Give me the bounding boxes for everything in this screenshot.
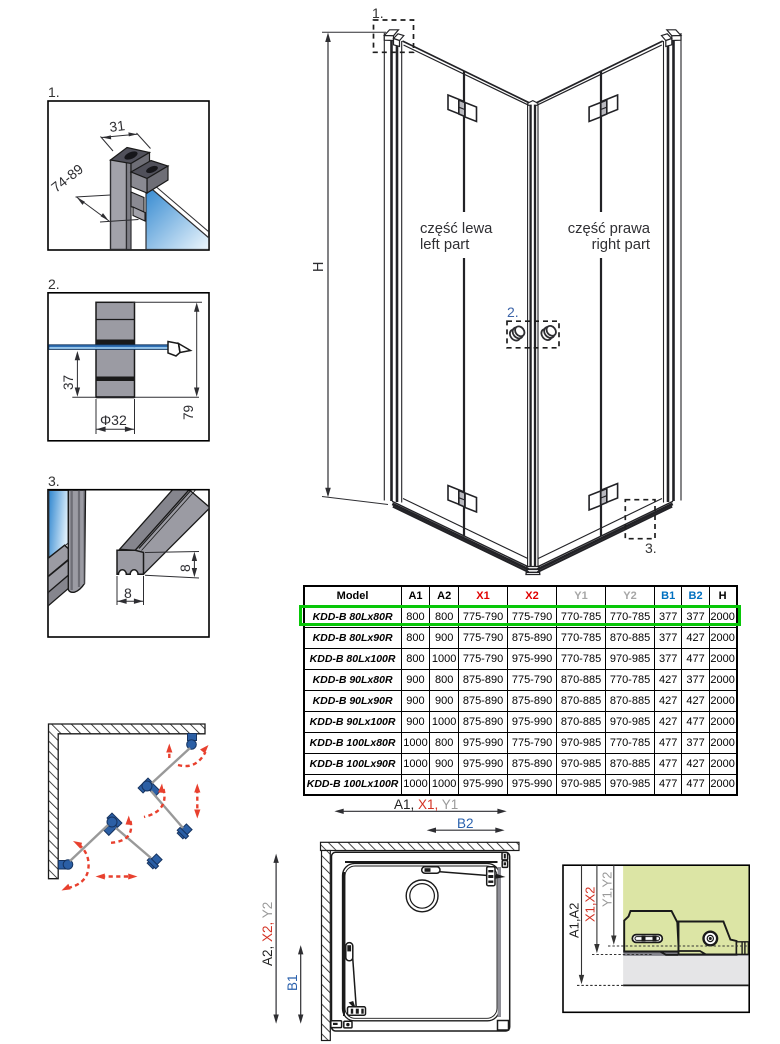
svg-text:79: 79: [181, 405, 196, 420]
svg-text:część lewa: część lewa: [420, 221, 493, 237]
svg-text:B1: B1: [285, 974, 300, 991]
svg-text:8: 8: [124, 585, 132, 601]
svg-text:H: H: [311, 262, 327, 272]
svg-text:część prawa: część prawa: [568, 221, 651, 237]
svg-text:A1, X1, Y1: A1, X1, Y1: [394, 797, 458, 812]
svg-text:A1,A2: A1,A2: [567, 903, 582, 938]
svg-text:right part: right part: [592, 237, 650, 253]
svg-text:1.: 1.: [372, 5, 384, 21]
svg-text:left part: left part: [420, 237, 469, 253]
svg-text:Φ32: Φ32: [100, 412, 127, 428]
svg-text:31: 31: [108, 117, 126, 135]
svg-text:1.: 1.: [48, 84, 60, 100]
svg-text:3.: 3.: [48, 473, 60, 489]
svg-text:2.: 2.: [48, 276, 60, 292]
svg-text:8: 8: [177, 564, 193, 572]
svg-text:37: 37: [61, 375, 76, 390]
svg-text:3.: 3.: [645, 540, 657, 556]
svg-text:X1,X2: X1,X2: [583, 887, 598, 922]
svg-text:Y1,Y2: Y1,Y2: [600, 872, 615, 907]
svg-text:A2, X2, Y2: A2, X2, Y2: [260, 902, 275, 966]
svg-text:B2: B2: [457, 816, 474, 831]
svg-text:2.: 2.: [507, 304, 519, 320]
